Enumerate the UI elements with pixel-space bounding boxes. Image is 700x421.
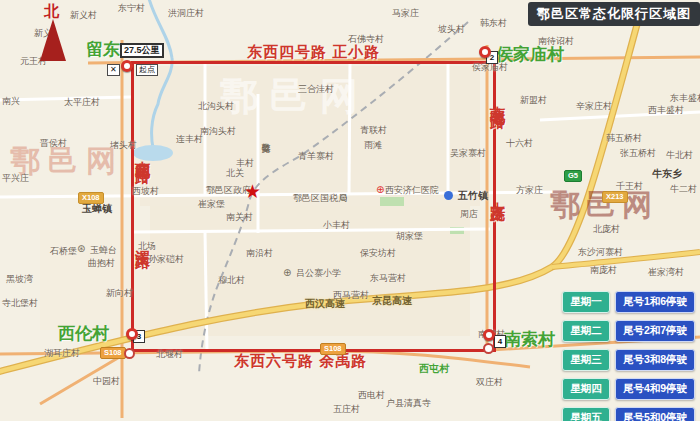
map-title-banner: 鄠邑区常态化限行区域图 bbox=[528, 2, 700, 26]
map-label: 北关 bbox=[226, 169, 244, 179]
map-label: 西屯村 bbox=[419, 363, 449, 374]
no-entry-icon: ✕ bbox=[107, 64, 120, 76]
weekday-badge: 星期五 bbox=[562, 407, 610, 421]
map-label: 崔家湾村 bbox=[648, 268, 684, 278]
government-star-icon: ★ bbox=[244, 182, 261, 201]
start-point-label: 起点 bbox=[136, 64, 158, 76]
map-label: 青联村 bbox=[360, 126, 387, 136]
corner-ring bbox=[483, 343, 494, 354]
map-label: 双庄村 bbox=[476, 378, 503, 388]
map-label: 马家庄 bbox=[392, 9, 419, 19]
location-pin bbox=[479, 46, 491, 58]
heritage-site-icon: ⊛ bbox=[77, 244, 85, 254]
right-boundary-road-label: 南北七号路 bbox=[489, 94, 506, 104]
map-label: 辛家庄村 bbox=[576, 102, 612, 112]
map-label: 东沙河寨村 bbox=[578, 248, 623, 258]
map-label: 玉蝉镇 bbox=[82, 203, 112, 214]
map-label: 雨滩 bbox=[364, 141, 382, 151]
map-label: 牛二村 bbox=[670, 185, 697, 195]
watermark: 鄠邑网 bbox=[220, 76, 370, 118]
map-label: 五竹镇 bbox=[458, 190, 488, 201]
map-label: 保安坊村 bbox=[360, 249, 396, 259]
map-label: 牛北村 bbox=[666, 151, 693, 161]
weekday-badge: 星期二 bbox=[562, 320, 610, 342]
town-dot-icon bbox=[444, 191, 453, 200]
map-label: 洪洞庄村 bbox=[168, 9, 204, 19]
road-number-badge: X108 bbox=[78, 192, 104, 204]
map-label: 北沟头村 bbox=[198, 102, 234, 112]
map-label: 湖耳庄村 bbox=[44, 349, 80, 359]
legend-row: 星期五尾号5和0停驶 bbox=[562, 407, 695, 421]
expressway-label: 京昆高速 bbox=[372, 295, 412, 306]
map-label: 吴家寨村 bbox=[450, 149, 486, 159]
map-label: 北庞村 bbox=[593, 225, 620, 235]
map-label: 户县清真寺 bbox=[386, 399, 431, 409]
legend-row: 星期一尾号1和6停驶 bbox=[562, 291, 695, 313]
map-label: 孙家磑村 bbox=[148, 255, 184, 265]
distance-label: 27.5公里 bbox=[120, 43, 164, 58]
map-canvas: 东西四号路 正小路东西六号路 余禹路南北四号路渭天路南北七号路大庞路留东侯家庙村… bbox=[0, 0, 700, 421]
village-label-liudong: 留东 bbox=[86, 41, 120, 60]
map-label: 寺北堡村 bbox=[2, 299, 38, 309]
map-label: 东丰盛村 bbox=[670, 94, 700, 104]
map-label: 五庄村 bbox=[333, 405, 360, 415]
road-number-badge: S108 bbox=[100, 347, 126, 359]
map-label: 南沿村 bbox=[246, 249, 273, 259]
map-label: 连丰村 bbox=[176, 135, 203, 145]
top-boundary-road-label: 东西四号路 正小路 bbox=[247, 44, 380, 61]
map-label: 三合洼村 bbox=[298, 85, 334, 95]
map-label: 韩东村 bbox=[480, 19, 507, 29]
map-label: 西坡村 bbox=[132, 187, 159, 197]
tax-office-icon: ⊙ bbox=[339, 193, 347, 203]
map-label: 南待诏村 bbox=[538, 37, 574, 47]
school-label: 吕公寨小学 bbox=[296, 269, 341, 279]
village-label-nansuo: 南索村 bbox=[504, 331, 555, 350]
map-label: 新义村 bbox=[70, 11, 97, 21]
map-label: 崔家堡 bbox=[198, 200, 225, 210]
map-label: 南关村 bbox=[226, 213, 253, 223]
map-label: 玉蝉台 bbox=[90, 246, 117, 256]
corner-number-badge: 4 bbox=[494, 335, 506, 348]
map-label: 西丰盛村 bbox=[648, 106, 684, 116]
map-label: 十六村 bbox=[506, 139, 533, 149]
map-label: 太平庄村 bbox=[64, 98, 100, 108]
map-label: 胡家堡 bbox=[396, 232, 423, 242]
map-label: 南沟头村 bbox=[200, 127, 236, 137]
road-number-badge: S108 bbox=[320, 343, 346, 355]
map-label: 穆北村 bbox=[218, 276, 245, 286]
road-number-badge: X213 bbox=[602, 191, 628, 203]
location-pin bbox=[121, 60, 133, 72]
weekday-badge: 星期一 bbox=[562, 291, 610, 313]
tail-number-rule-badge: 尾号4和9停驶 bbox=[615, 378, 695, 400]
tail-number-rule-badge: 尾号1和6停驶 bbox=[615, 291, 695, 313]
map-label: 韩五桥村 bbox=[606, 134, 642, 144]
village-label-xilun: 西伦村 bbox=[58, 325, 109, 344]
map-label: 平兴庄 bbox=[2, 174, 29, 184]
map-label: 曲抱村 bbox=[88, 259, 115, 269]
right-boundary-road-label-2: 大庞路 bbox=[489, 190, 506, 196]
school-icon: ⊕ bbox=[283, 268, 291, 278]
location-pin bbox=[126, 328, 138, 340]
map-label: 娄敬路 bbox=[260, 135, 270, 138]
map-label: 丰村 bbox=[236, 159, 254, 169]
map-label: 周店 bbox=[460, 210, 478, 220]
weekday-badge: 星期三 bbox=[562, 349, 610, 371]
corner-ring bbox=[124, 348, 135, 359]
road-number-badge: G5 bbox=[564, 170, 582, 182]
map-label: 牛东乡 bbox=[652, 168, 682, 179]
map-label: 北堰村 bbox=[156, 350, 183, 360]
weekday-badge: 星期四 bbox=[562, 378, 610, 400]
map-label: 坡头村 bbox=[438, 25, 465, 35]
map-label: 东马营村 bbox=[370, 274, 406, 284]
tail-number-rule-badge: 尾号3和8停驶 bbox=[615, 349, 695, 371]
tail-number-rule-badge: 尾号2和7停驶 bbox=[615, 320, 695, 342]
tail-number-rule-badge: 尾号5和0停驶 bbox=[615, 407, 695, 421]
map-label: 东宁村 bbox=[118, 4, 145, 14]
map-label: 南庞村 bbox=[590, 266, 617, 276]
map-label: 西电村 bbox=[358, 391, 385, 401]
map-label: 北场 bbox=[138, 242, 156, 252]
map-label: 张五桥村 bbox=[620, 149, 656, 159]
hospital-label: 西安济仁医院 bbox=[385, 186, 439, 196]
map-label: 侯家庙村 bbox=[472, 63, 508, 73]
legend-row: 星期三尾号3和8停驶 bbox=[562, 349, 695, 371]
map-label: 堵头村 bbox=[110, 141, 137, 151]
map-label: 小丰村 bbox=[323, 221, 350, 231]
map-label: 晋侯村 bbox=[40, 139, 67, 149]
map-label: 南兴 bbox=[2, 97, 20, 107]
legend-row: 星期四尾号4和9停驶 bbox=[562, 378, 695, 400]
map-label: 新向村 bbox=[106, 289, 133, 299]
map-label: 西马营村 bbox=[333, 291, 369, 301]
restriction-legend: 星期一尾号1和6停驶星期二尾号2和7停驶星期三尾号3和8停驶星期四尾号4和9停驶… bbox=[562, 291, 695, 421]
map-label: 青羊寨村 bbox=[298, 152, 334, 162]
map-label: 黑坡湾 bbox=[6, 275, 33, 285]
map-label: 中园村 bbox=[93, 377, 120, 387]
map-label: 石桥堡 bbox=[50, 247, 77, 257]
location-pin bbox=[483, 329, 495, 341]
bottom-boundary-road-label: 东西六号路 余禹路 bbox=[234, 353, 367, 370]
hospital-cross-icon: ⊕ bbox=[376, 185, 384, 195]
compass-arrow-icon bbox=[40, 19, 66, 61]
legend-row: 星期二尾号2和7停驶 bbox=[562, 320, 695, 342]
map-label: 石佛寺村 bbox=[348, 35, 384, 45]
map-label: 新盟村 bbox=[520, 96, 547, 106]
map-label: 方家庄 bbox=[516, 186, 543, 196]
